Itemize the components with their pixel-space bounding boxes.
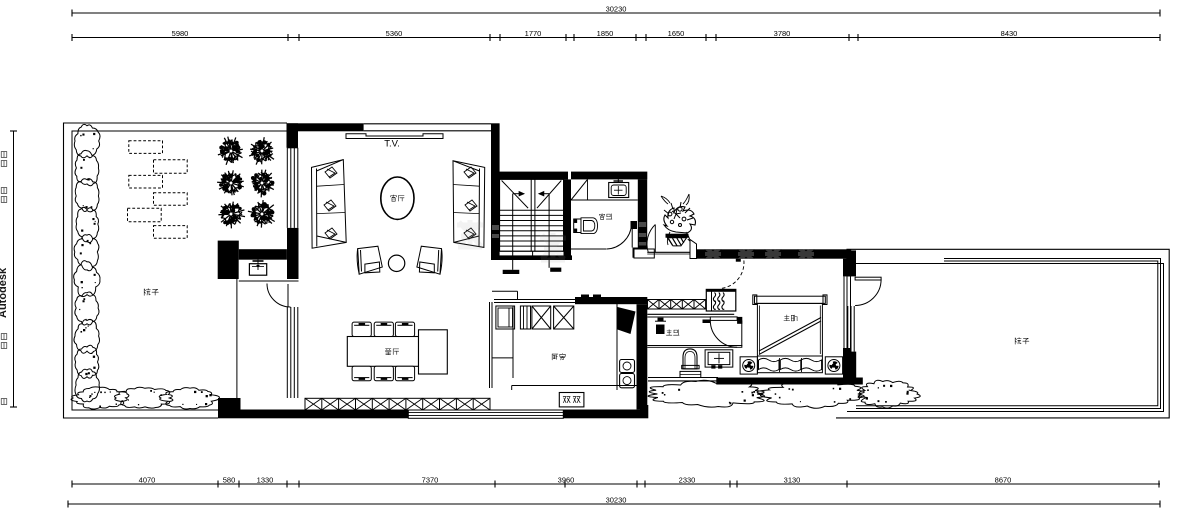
svg-text:5360: 5360 [386, 29, 403, 38]
svg-text:1650: 1650 [668, 29, 685, 38]
svg-text:1330: 1330 [257, 476, 274, 485]
svg-text:8670: 8670 [995, 476, 1012, 485]
svg-text:580: 580 [223, 476, 236, 485]
svg-text:3780: 3780 [774, 29, 791, 38]
svg-text:T.V.: T.V. [384, 139, 400, 150]
svg-text:1770: 1770 [525, 29, 542, 38]
svg-text:30230: 30230 [606, 5, 627, 14]
svg-text:7370: 7370 [422, 476, 439, 485]
svg-text:1850: 1850 [597, 29, 614, 38]
svg-text:3960: 3960 [558, 476, 575, 485]
svg-text:4070: 4070 [139, 476, 156, 485]
svg-text:5980: 5980 [172, 29, 189, 38]
svg-text:2330: 2330 [679, 476, 696, 485]
svg-text:8430: 8430 [1001, 29, 1018, 38]
svg-text:Autodesk: Autodesk [0, 267, 9, 318]
svg-text:30230: 30230 [606, 496, 627, 505]
svg-text:3130: 3130 [784, 476, 801, 485]
